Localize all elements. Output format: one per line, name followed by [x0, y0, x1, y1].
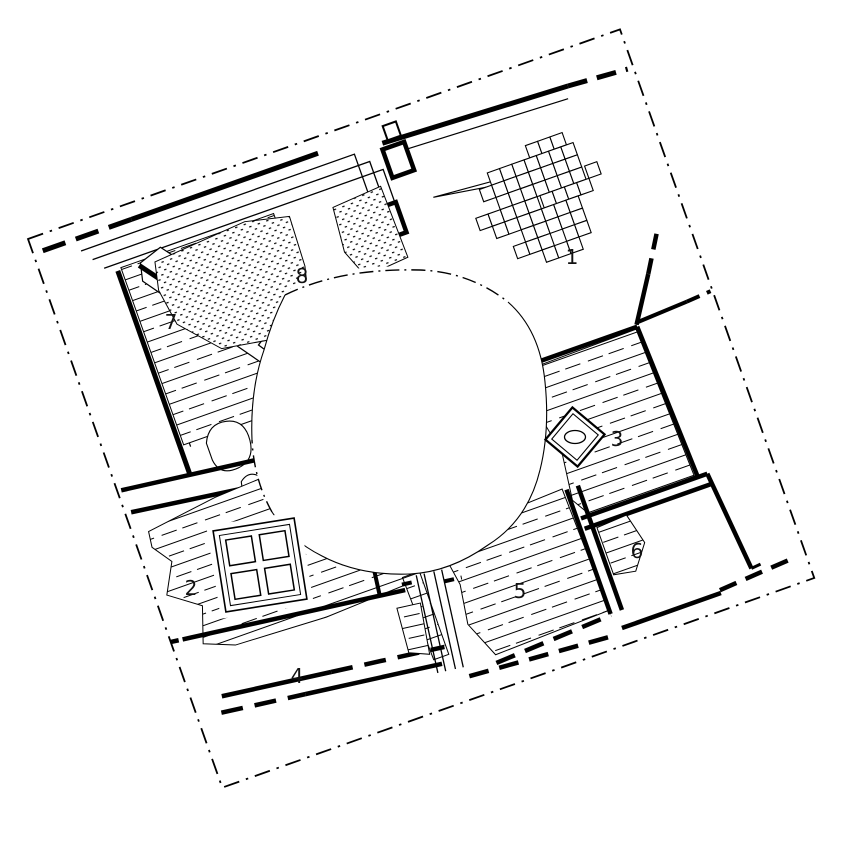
north-wall — [131, 153, 318, 219]
room-4-north-wall-restored — [171, 639, 183, 642]
room-3-northeast-wall — [622, 274, 663, 325]
room-6-south-wall-restored — [718, 557, 798, 590]
room-3-northeast-wall-restored — [636, 230, 670, 273]
pier-socle — [383, 121, 401, 140]
room-4-south-wall-inner-restored — [221, 694, 305, 713]
north-wall-restored — [43, 219, 132, 250]
site-plan-svg: 1 2 3 4 5 6 7 8 — [0, 0, 864, 851]
room-label-5: 5 — [514, 579, 527, 603]
room-label-2: 2 — [185, 576, 198, 600]
room-label-3: 3 — [611, 427, 624, 451]
room-4-south-wall-inner — [305, 664, 442, 694]
tile-floor-room-1 — [427, 125, 623, 291]
room-6-south-wall — [622, 593, 721, 628]
room-label-1: 1 — [566, 245, 579, 269]
site-plan: 1 2 3 4 5 6 7 8 — [0, 0, 864, 851]
room-label-7: 7 — [165, 310, 178, 334]
pier-1 — [382, 142, 414, 178]
north-wall-east-restored — [568, 65, 628, 89]
basin-mouth — [565, 431, 586, 444]
room-6-corner-tick — [751, 564, 761, 568]
room-label-6: 6 — [631, 539, 644, 563]
room-6-east-wall — [707, 470, 751, 571]
room-label-8: 8 — [296, 264, 309, 288]
room-label-4: 4 — [291, 664, 304, 688]
room-3-east-spur-restored — [686, 291, 711, 302]
pillar-base-feature — [206, 511, 314, 619]
